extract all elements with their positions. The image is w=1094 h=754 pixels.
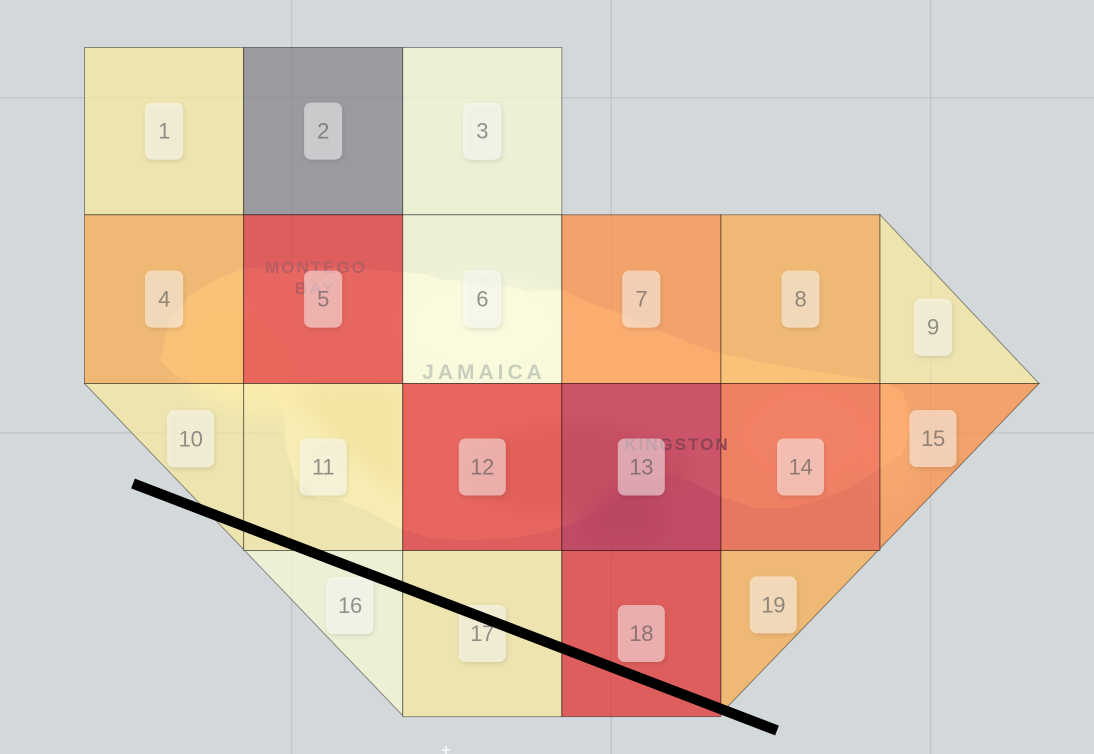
svg-text:7: 7 (635, 287, 647, 312)
svg-text:JAMAICA: JAMAICA (422, 361, 546, 384)
svg-text:3: 3 (476, 119, 488, 144)
svg-text:13: 13 (629, 455, 653, 480)
svg-text:10: 10 (179, 426, 203, 451)
svg-text:8: 8 (795, 287, 807, 312)
svg-text:4: 4 (158, 287, 170, 312)
svg-text:2: 2 (317, 119, 329, 144)
svg-text:11: 11 (312, 455, 334, 480)
svg-text:9: 9 (927, 315, 939, 340)
svg-text:15: 15 (921, 426, 945, 451)
svg-text:16: 16 (338, 593, 362, 618)
svg-text:19: 19 (761, 592, 785, 617)
svg-text:6: 6 (476, 287, 488, 312)
svg-text:5: 5 (317, 287, 329, 312)
svg-text:14: 14 (789, 455, 813, 480)
svg-text:18: 18 (629, 621, 653, 646)
svg-text:1: 1 (158, 119, 170, 144)
svg-text:12: 12 (470, 455, 494, 480)
